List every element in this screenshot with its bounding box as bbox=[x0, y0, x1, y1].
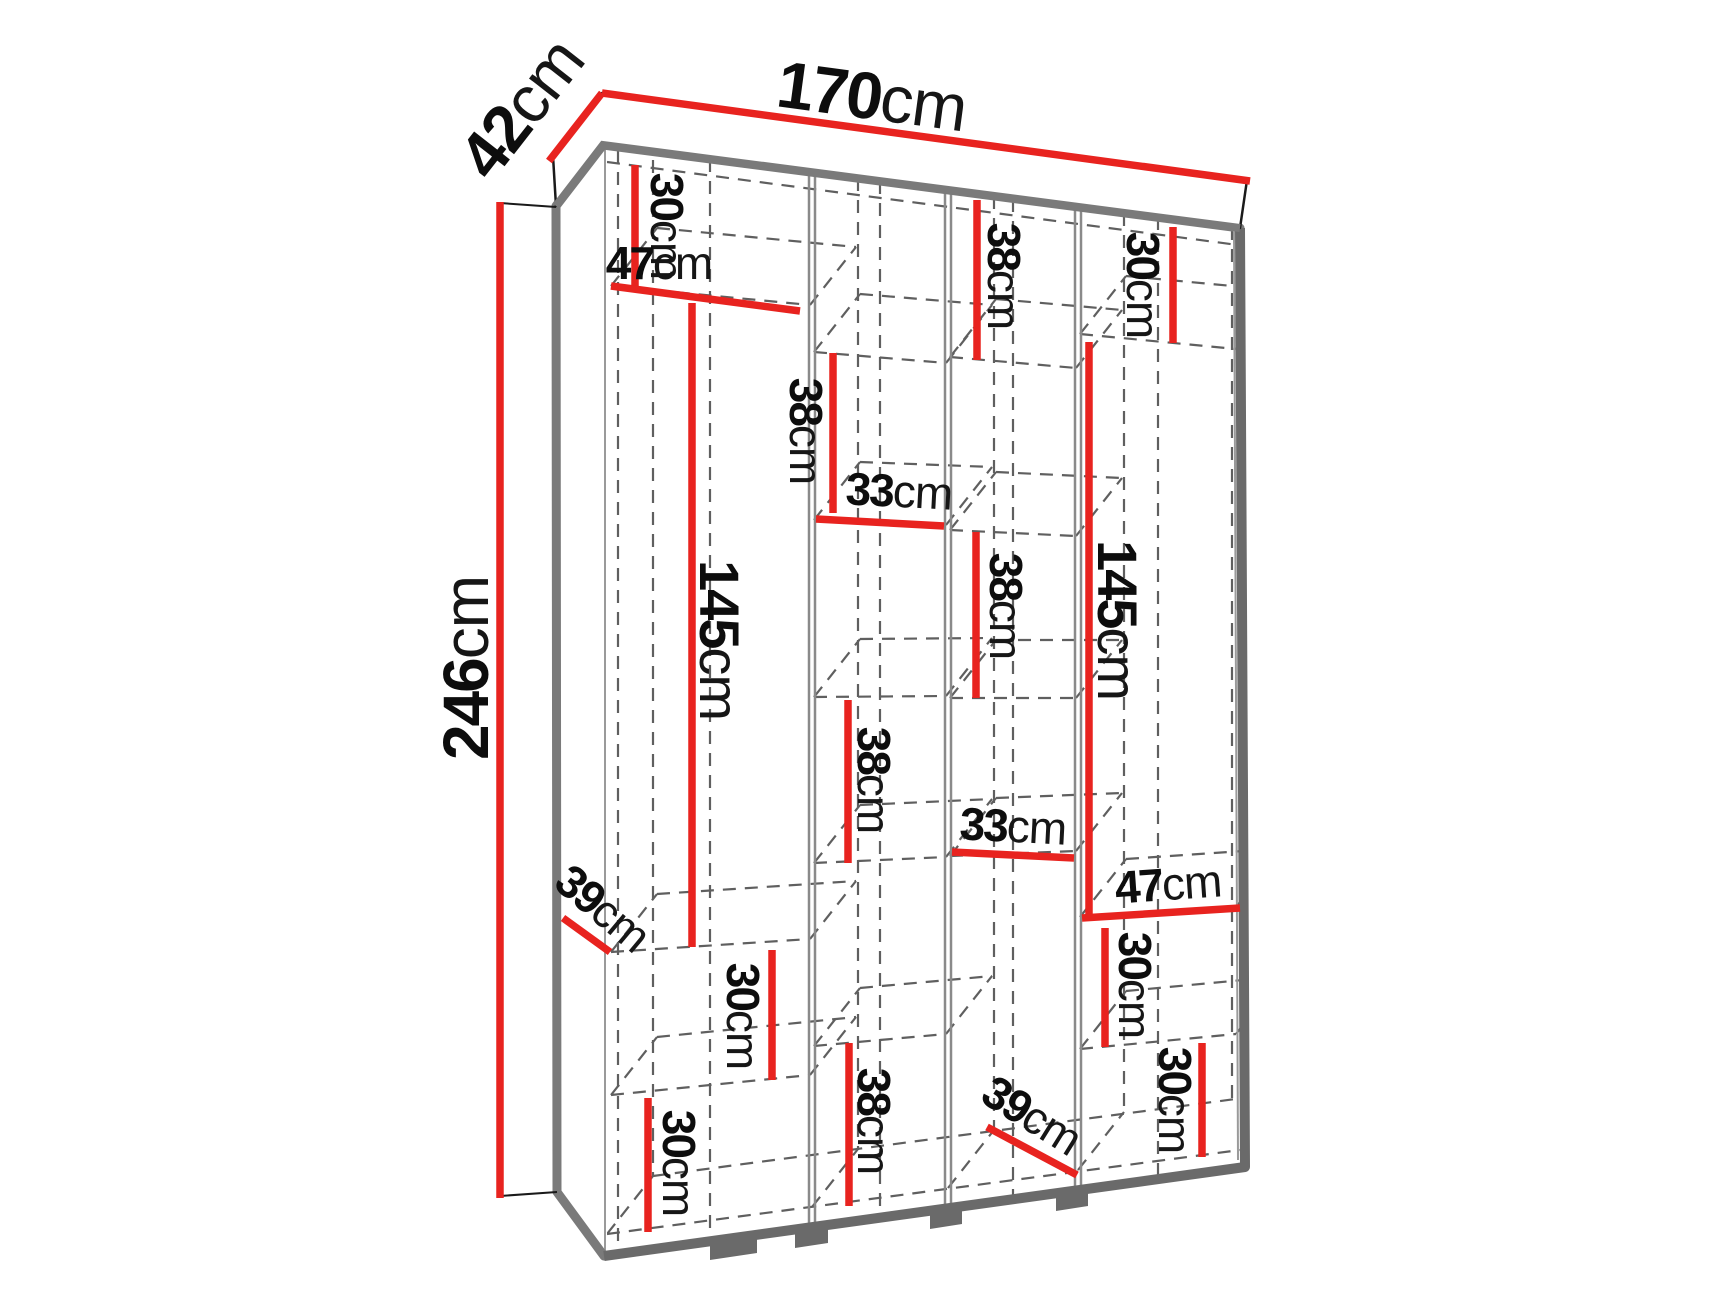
dimension-ticks bbox=[500, 203, 557, 1196]
dimension-label-c1-width-47: 47cm bbox=[606, 237, 713, 289]
dimension-label-c3-top-38: 38cm bbox=[978, 223, 1030, 330]
diagram-canvas: 170cm42cm246cm30cm47cm145cm39cm30cm30cm3… bbox=[0, 0, 1726, 1295]
dimension-c4-shelf-30b: 30cm bbox=[1149, 1043, 1202, 1157]
dimension-label-c3-38b: 38cm bbox=[980, 553, 1032, 660]
dimension-label-c3-width-33: 33cm bbox=[958, 797, 1067, 855]
dimension-label-c1-hang-145: 145cm bbox=[689, 560, 752, 720]
dimension-label-c2-width-33: 33cm bbox=[844, 462, 953, 520]
dimension-label-c1-shelf-30a: 30cm bbox=[717, 963, 769, 1070]
dimension-label-c2-38b: 38cm bbox=[848, 727, 900, 834]
dimension-height-left: 246cm bbox=[430, 202, 502, 1198]
dimension-c1-shelf-30a: 30cm bbox=[717, 950, 772, 1080]
dimension-label-c1-shelf-30b: 30cm bbox=[653, 1110, 705, 1217]
dimension-c4-shelf-30a: 30cm bbox=[1105, 928, 1161, 1047]
dimension-label-c4-hang-145: 145cm bbox=[1087, 540, 1150, 700]
wardrobe-dimension-diagram: 170cm42cm246cm30cm47cm145cm39cm30cm30cm3… bbox=[0, 0, 1726, 1295]
dimension-c1-shelf-30b: 30cm bbox=[648, 1098, 705, 1232]
dimension-label-c4-width-47: 47cm bbox=[1113, 854, 1223, 913]
dimension-c3-width-33: 33cm bbox=[952, 797, 1074, 858]
dimension-label-c4-shelf-30b: 30cm bbox=[1149, 1047, 1201, 1154]
dimension-label-c2-38c: 38cm bbox=[848, 1068, 900, 1175]
dimension-label-height-left: 246cm bbox=[430, 576, 502, 760]
dimension-label-c2-38a: 38cm bbox=[780, 378, 832, 485]
dimension-label-c4-top-30: 30cm bbox=[1117, 232, 1169, 339]
dimension-label-c4-shelf-30a: 30cm bbox=[1109, 932, 1161, 1039]
dimension-c4-top-30: 30cm bbox=[1117, 227, 1173, 343]
